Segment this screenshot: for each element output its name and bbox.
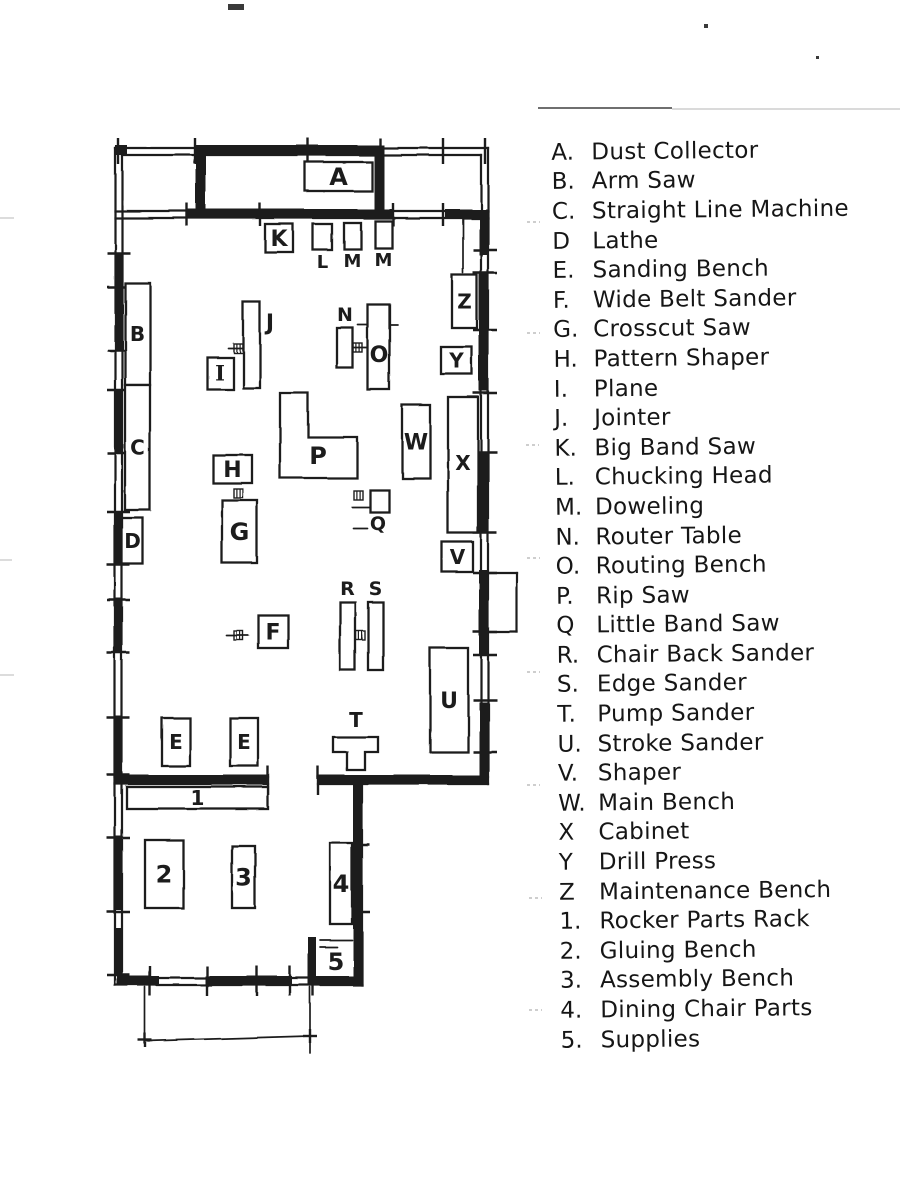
wall-poche xyxy=(479,452,488,533)
legend-key: H. xyxy=(553,346,593,372)
wall-poche xyxy=(479,273,488,391)
legend-item-M: M.Doweling xyxy=(555,489,899,522)
legend-item-T: T.Pump Sander xyxy=(557,696,900,729)
legend-label: Rocker Parts Rack xyxy=(599,906,810,934)
legend-item-Z: ZMaintenance Bench xyxy=(559,874,900,907)
legend-label: Doweling xyxy=(595,493,704,520)
legend-label: Shaper xyxy=(598,760,682,787)
legend-key: N. xyxy=(555,524,595,550)
legend-key: Y xyxy=(559,849,599,875)
machine-label-M2: M xyxy=(375,250,393,271)
legend-label: Plane xyxy=(594,375,659,402)
legend-item-B: B.Arm Saw xyxy=(552,164,896,197)
legend-key: 1. xyxy=(559,909,599,935)
legend-key: 2. xyxy=(560,938,600,964)
wall-poche xyxy=(205,976,292,986)
legend-label: Sanding Bench xyxy=(592,256,769,284)
legend-label: Stroke Sander xyxy=(597,729,763,757)
machine-label-E1: E xyxy=(169,730,183,754)
legend-label: Rip Saw xyxy=(596,582,690,609)
legend-item-R: R.Chair Back Sander xyxy=(556,637,900,670)
machine-label-A: A xyxy=(329,163,348,191)
legend-key: Z xyxy=(559,879,599,905)
wall-poche xyxy=(117,976,159,986)
machine-label-L: L xyxy=(317,252,328,273)
legend-key: 3. xyxy=(560,968,600,994)
legend-key: X xyxy=(558,820,598,846)
legend-item-W: W.Main Bench xyxy=(558,785,900,818)
machine-label-N: N xyxy=(337,304,353,326)
wall-poche xyxy=(318,775,488,785)
machine-label-T: T xyxy=(349,708,363,732)
legend-item-Y: YDrill Press xyxy=(559,844,900,877)
legend-label: Gluing Bench xyxy=(600,937,757,965)
machine-label-I: I xyxy=(215,361,225,386)
legend-item-4: 4.Dining Chair Parts xyxy=(560,992,900,1025)
legend-key: L. xyxy=(555,465,595,491)
legend-key: A. xyxy=(551,139,591,165)
machine-label-Y: Y xyxy=(448,349,464,373)
legend-key: I. xyxy=(554,376,594,402)
legend-key: O. xyxy=(556,553,596,579)
wall-poche xyxy=(115,775,268,785)
machine-label-U: U xyxy=(440,689,458,714)
machine-label-O: O xyxy=(370,343,389,368)
scan-speck xyxy=(704,24,708,28)
machine-label-R: R xyxy=(340,578,355,600)
machine-label-W: W xyxy=(404,430,428,455)
legend-item-O: O.Routing Bench xyxy=(556,549,900,582)
legend-item-S: S.Edge Sander xyxy=(557,667,900,700)
legend-label: Straight Line Machine xyxy=(592,196,849,225)
legend-label: Crosscut Saw xyxy=(593,315,751,343)
legend-key: U. xyxy=(557,731,597,757)
machine-label-V: V xyxy=(450,545,466,569)
legend-key: P. xyxy=(556,583,596,609)
legend-item-J: J.Jointer xyxy=(554,401,898,434)
legend-key: T. xyxy=(557,701,597,727)
legend-item-N: N.Router Table xyxy=(555,519,899,552)
machine-label-parts-4: 4 xyxy=(333,870,350,898)
legend-label: Maintenance Bench xyxy=(599,877,832,905)
wall-poche xyxy=(114,253,123,350)
machine-label-B: B xyxy=(130,322,145,346)
scan-speck xyxy=(816,56,819,59)
legend-key: F. xyxy=(553,287,593,313)
legend-key: R. xyxy=(556,642,596,668)
machine-label-bench-3: 3 xyxy=(235,864,252,892)
legend-label: Jointer xyxy=(594,405,671,432)
legend-item-X: XCabinet xyxy=(558,815,900,848)
floor-outlet-hatch xyxy=(356,631,365,640)
machine-label-Q: Q xyxy=(370,513,386,535)
wall-poche xyxy=(114,390,123,453)
machine-J xyxy=(243,302,260,388)
machine-N xyxy=(337,328,353,368)
legend-key: K. xyxy=(554,435,594,461)
legend-item-C: C.Straight Line Machine xyxy=(552,193,896,226)
legend-item-U: U.Stroke Sander xyxy=(557,726,900,759)
legend-label: Chucking Head xyxy=(595,463,773,491)
legend-key: D xyxy=(552,228,592,254)
legend-key: S. xyxy=(557,672,597,698)
legend-item-E: E.Sanding Bench xyxy=(552,253,896,286)
floor-outlet-hatch xyxy=(354,491,363,500)
machine-label-F: F xyxy=(265,620,280,645)
wall-poche xyxy=(353,779,362,985)
legend-item-L: L.Chucking Head xyxy=(555,460,899,493)
legend-label: Supplies xyxy=(601,1026,701,1053)
legend-label: Drill Press xyxy=(599,848,717,875)
legend-item-3: 3.Assembly Bench xyxy=(560,963,900,996)
area-label-5: 5 xyxy=(328,948,345,976)
legend-label: Main Bench xyxy=(598,789,735,816)
machine-label-bench-2: 2 xyxy=(156,861,173,889)
legend-label: Router Table xyxy=(595,522,742,550)
machine-label-X: X xyxy=(455,451,471,475)
scan-speck xyxy=(228,4,244,10)
wall-poche xyxy=(445,209,488,219)
machine-label-rack-1: 1 xyxy=(191,786,205,810)
legend-label: Dust Collector xyxy=(591,137,758,165)
legend-label: Little Band Saw xyxy=(596,611,780,639)
machine-label-J: J xyxy=(264,311,274,336)
sketch-line xyxy=(145,1036,310,1041)
wall-poche xyxy=(188,209,393,219)
machine-R xyxy=(340,602,355,670)
wall-poche xyxy=(479,570,488,655)
legend-item-G: G.Crosscut Saw xyxy=(553,312,897,345)
wall-poche xyxy=(196,145,384,155)
legend-item-2: 2.Gluing Bench xyxy=(560,933,900,966)
machine-label-C: C xyxy=(130,436,145,460)
legend-key: J. xyxy=(554,406,594,432)
wall-poche xyxy=(114,598,123,653)
wall-poche xyxy=(479,702,488,780)
legend-key: W. xyxy=(558,790,598,816)
legend-label: Cabinet xyxy=(598,819,689,846)
wall-poche xyxy=(308,976,362,986)
legend-key: C. xyxy=(552,198,592,224)
legend-item-D: DLathe xyxy=(552,223,896,256)
machine-M2 xyxy=(375,221,392,248)
machine-label-Z: Z xyxy=(457,290,472,314)
legend-key: Q xyxy=(556,613,596,639)
machine-label-G: G xyxy=(230,518,250,546)
legend-key: E. xyxy=(552,258,592,284)
legend-key: B. xyxy=(552,169,592,195)
wall-poche xyxy=(196,148,206,219)
machine-label-D: D xyxy=(124,529,141,553)
legend-label: Chair Back Sander xyxy=(596,640,814,668)
legend-label: Big Band Saw xyxy=(594,433,756,461)
legend: A.Dust CollectorB.Arm SawC.Straight Line… xyxy=(551,134,900,1055)
legend-item-H: H.Pattern Shaper xyxy=(553,341,897,374)
legend-key: M. xyxy=(555,494,595,520)
legend-item-P: P.Rip Saw xyxy=(556,578,900,611)
legend-label: Arm Saw xyxy=(592,168,696,195)
machine-M1 xyxy=(344,223,361,249)
legend-label: Pump Sander xyxy=(597,700,754,728)
legend-item-Q: QLittle Band Saw xyxy=(556,608,900,641)
legend-item-1: 1.Rocker Parts Rack xyxy=(559,904,900,937)
machine-S xyxy=(368,602,383,670)
machine-label-H: H xyxy=(223,458,241,483)
wall-poche xyxy=(114,836,123,910)
legend-label: Edge Sander xyxy=(597,670,747,698)
legend-label: Lathe xyxy=(592,227,658,254)
machine-label-S: S xyxy=(369,578,383,600)
legend-label: Assembly Bench xyxy=(600,966,794,994)
legend-label: Routing Bench xyxy=(596,552,767,580)
machine-T xyxy=(333,737,378,770)
machine-label-E2: E xyxy=(237,730,251,754)
legend-item-I: I.Plane xyxy=(554,371,898,404)
machine-label-K: K xyxy=(270,227,288,252)
machine-L xyxy=(313,224,332,250)
legend-item-F: F.Wide Belt Sander xyxy=(553,282,897,315)
legend-item-5: 5.Supplies xyxy=(561,1022,900,1055)
wall-poche xyxy=(114,716,123,775)
legend-item-V: V.Shaper xyxy=(558,756,900,789)
legend-item-A: A.Dust Collector xyxy=(551,134,895,167)
legend-key: G. xyxy=(553,317,593,343)
legend-label: Wide Belt Sander xyxy=(593,285,797,313)
floorplan-geometry xyxy=(107,138,517,1053)
machine-label-P: P xyxy=(309,442,327,470)
machine-label-M1: M xyxy=(344,251,362,272)
legend-key: V. xyxy=(558,761,598,787)
machine-Q xyxy=(370,490,389,512)
scanned-page: AKLMMBCDIJNOZYHGWXQVFRSUEE1234PT5 A.Dust… xyxy=(0,0,900,1200)
legend-label: Pattern Shaper xyxy=(593,345,769,373)
wall-poche xyxy=(114,928,123,975)
legend-key: 4. xyxy=(560,997,600,1023)
floor-outlet-hatch xyxy=(234,489,243,498)
legend-key: 5. xyxy=(561,1027,601,1053)
legend-label: Dining Chair Parts xyxy=(600,995,812,1023)
legend-item-K: K.Big Band Saw xyxy=(554,430,898,463)
